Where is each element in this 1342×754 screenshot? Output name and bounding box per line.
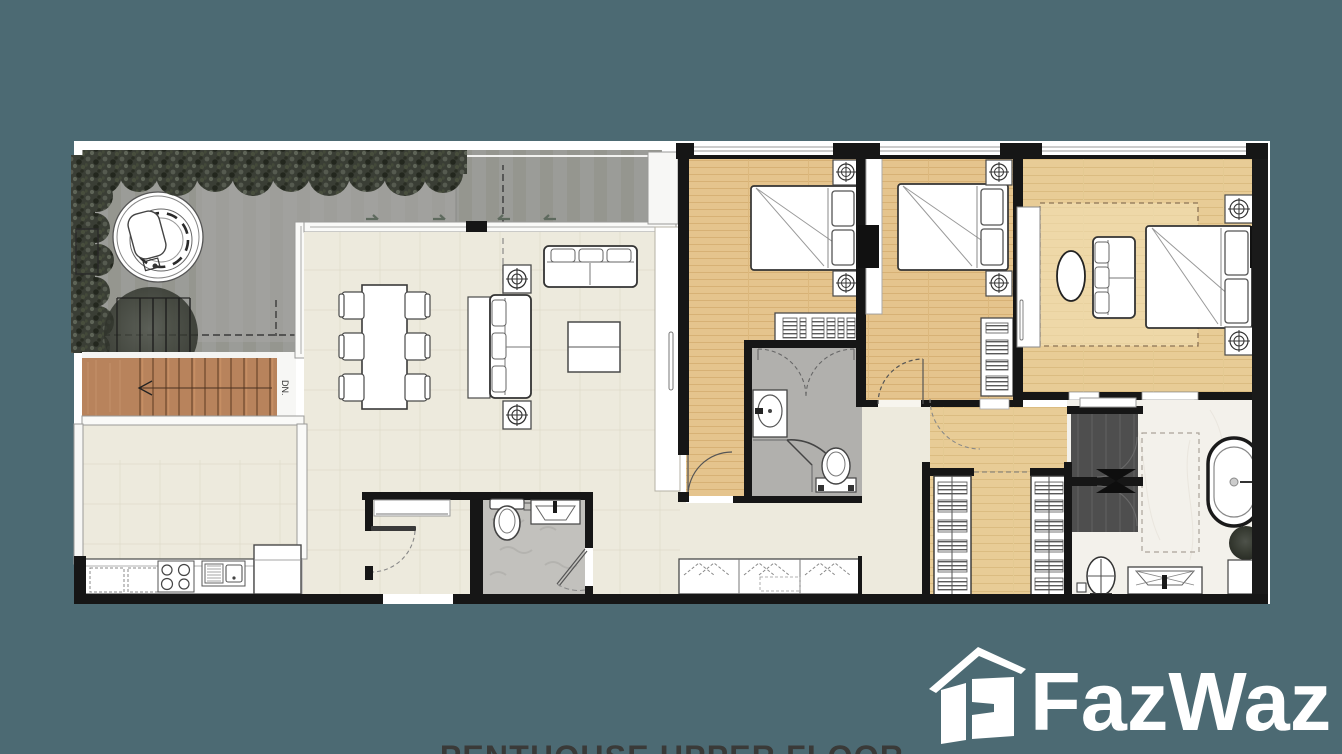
svg-text:PENTHOUSE UPPER FLOOR: PENTHOUSE UPPER FLOOR — [440, 739, 904, 754]
svg-text:DN.: DN. — [280, 380, 290, 396]
svg-text:FazWaz: FazWaz — [1030, 655, 1331, 748]
